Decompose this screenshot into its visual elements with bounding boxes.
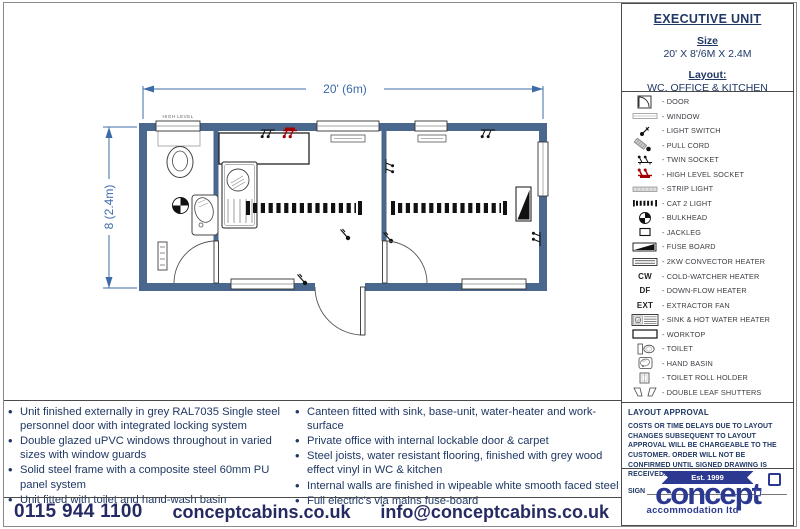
floor-plan: 20' (6m) 8 (2.4m) — [4, 3, 621, 400]
legend-item-label: - HAND BASIN — [662, 359, 713, 368]
entrance-opening — [315, 283, 365, 292]
legend-item: - WINDOW — [628, 110, 793, 123]
logo-est-ribbon: Est. 1999 — [662, 471, 754, 484]
datasheet-page: 20' (6m) 8 (2.4m) — [0, 0, 800, 529]
office-cat2-light — [391, 201, 507, 215]
ext-abbr: EXT — [628, 298, 662, 312]
legend-item-label: - CAT 2 LIGHT — [662, 199, 712, 208]
layout-approval-box: LAYOUT APPROVAL COSTS OR TIME DELAYS DUE… — [621, 402, 794, 526]
double-leaf-shutters-icon — [628, 385, 662, 399]
legend-item-label: - TWIN SOCKET — [662, 155, 719, 164]
legend-item: - STRIP LIGHT — [628, 182, 793, 195]
legend-item: CW- COLD-WATCHER HEATER — [628, 270, 793, 283]
legend-item-label: - FUSE BOARD — [662, 242, 716, 251]
legend-item-label: - EXTRACTOR FAN — [662, 301, 730, 310]
feature-item: Internal walls are finished in wipeable … — [291, 479, 621, 493]
entrance-door — [315, 287, 365, 335]
strip-light-icon — [628, 182, 662, 196]
legend-list: - DOOR- WINDOW- LIGHT SWITCH- PULL CORD-… — [621, 91, 794, 403]
floor-plan-area: 20' (6m) 8 (2.4m) — [4, 3, 621, 400]
features-list-left: Unit finished externally in grey RAL7035… — [4, 405, 291, 497]
legend-item: - CAT 2 LIGHT — [628, 197, 793, 210]
kitchen-cat2-light — [246, 201, 362, 215]
legend-item-label: - JACKLEG — [662, 228, 701, 237]
title-box: EXECUTIVE UNIT Size 20' X 8'/6M X 2.4M L… — [621, 3, 794, 92]
feature-item: Canteen fitted with sink, base-unit, wat… — [291, 405, 621, 433]
legend-item-label: - DOUBLE LEAF SHUTTERS — [662, 388, 761, 397]
legend-item-label: - COLD-WATCHER HEATER — [662, 272, 759, 281]
legend-item: - TWIN SOCKET — [628, 153, 793, 166]
light-switch-icon — [628, 124, 662, 138]
window-icon — [628, 109, 662, 123]
bulkhead-light — [173, 198, 189, 214]
legend-item-label: - HIGH LEVEL SOCKET — [662, 170, 744, 179]
df-abbr: DF — [628, 284, 662, 298]
pull-cord-icon — [628, 138, 662, 152]
legend-item-label: - DOWN-FLOW HEATER — [662, 286, 747, 295]
logo-square-big — [768, 473, 781, 486]
worktop — [219, 133, 309, 164]
legend-item: - SINK & HOT WATER HEATER — [628, 313, 793, 326]
layout-label: Layout: — [622, 69, 793, 81]
size-value: 20' X 8'/6M X 2.4M — [622, 48, 793, 60]
contact-bar: 0115 944 1100 conceptcabins.co.uk info@c… — [4, 497, 621, 526]
high-level-socket-icon — [628, 167, 662, 181]
legend-item: - DOOR — [628, 95, 793, 108]
sink-unit — [222, 162, 257, 228]
legend-item: EXT- EXTRACTOR FAN — [628, 299, 793, 312]
fuse-board — [516, 187, 531, 221]
legend-item-label: - PULL CORD — [662, 141, 710, 150]
legend-item: - HIGH LEVEL SOCKET — [628, 168, 793, 181]
twin-socket-icon — [628, 153, 662, 167]
legend-item-label: - 2KW CONVECTOR HEATER — [662, 257, 765, 266]
legend-item: - JACKLEG — [628, 226, 793, 239]
hand-basin — [192, 195, 218, 235]
legend-item: - PULL CORD — [628, 139, 793, 152]
logo-square-small — [754, 490, 761, 497]
twin-socket-partition — [386, 159, 394, 173]
legend-item: - LIGHT SWITCH — [628, 124, 793, 137]
toilet-icon — [628, 342, 662, 356]
office-partition-wall — [382, 127, 387, 241]
legend-item: - TOILET ROLL HOLDER — [628, 371, 793, 384]
toilet — [167, 147, 193, 178]
legend-item: DF- DOWN-FLOW HEATER — [628, 284, 793, 297]
jackleg-icon — [628, 225, 662, 239]
features-section: Unit finished externally in grey RAL7035… — [4, 400, 621, 497]
size-label: Size — [622, 35, 793, 47]
hand-basin-icon — [628, 356, 662, 370]
features-list-right: Canteen fitted with sink, base-unit, wat… — [291, 405, 621, 497]
logo-subtitle: accommodation ltd — [633, 505, 783, 516]
cat2-light-icon — [628, 196, 662, 210]
legend-item: - FUSE BOARD — [628, 240, 793, 253]
sink-heater-icon — [628, 313, 662, 327]
website-url: conceptcabins.co.uk — [172, 502, 350, 523]
legend-item-label: - SINK & HOT WATER HEATER — [662, 315, 770, 324]
phone-number: 0115 944 1100 — [14, 501, 143, 523]
light-switch-kitchen-partition — [341, 229, 351, 240]
legend-item-label: - LIGHT SWITCH — [662, 126, 721, 135]
legend-item: - TOILET — [628, 342, 793, 355]
twin-socket-office-top — [481, 130, 495, 138]
toilet-roll-holder — [158, 242, 167, 270]
feature-item: Unit finished externally in grey RAL7035… — [4, 405, 291, 433]
left-dimension: 8 (2.4m) — [102, 127, 137, 288]
legend-item-label: - WINDOW — [662, 112, 700, 121]
svg-text:20' (6m): 20' (6m) — [323, 82, 367, 96]
main-area: 20' (6m) 8 (2.4m) — [4, 3, 621, 526]
wc-door — [174, 241, 219, 283]
convector-heater-icon — [628, 255, 662, 269]
email-address: info@conceptcabins.co.uk — [380, 502, 609, 523]
cw-abbr: CW — [628, 269, 662, 283]
office-door — [383, 241, 428, 283]
bulkhead-icon — [628, 211, 662, 225]
feature-item: Steel joists, water resistant flooring, … — [291, 449, 621, 477]
twin-socket-office-right — [532, 232, 540, 246]
feature-item: Double glazed uPVC windows throughout in… — [4, 434, 291, 462]
fuse-board-icon — [628, 240, 662, 254]
legend-item-label: - TOILET — [662, 344, 693, 353]
company-logo: Est. 1999 concept accommodation ltd — [622, 468, 793, 525]
legend-item: - 2KW CONVECTOR HEATER — [628, 255, 793, 268]
worktop-icon — [628, 327, 662, 341]
feature-item: Solid steel frame with a composite steel… — [4, 463, 291, 491]
legend-item-label: - STRIP LIGHT — [662, 184, 713, 193]
legend-item-label: - TOILET ROLL HOLDER — [662, 373, 748, 382]
feature-item: Private office with internal lockable do… — [291, 434, 621, 448]
legend-item: - DOUBLE LEAF SHUTTERS — [628, 386, 793, 399]
toilet-roll-holder-icon — [628, 371, 662, 385]
svg-text:8 (2.4m): 8 (2.4m) — [102, 185, 116, 230]
legend-item-label: - BULKHEAD — [662, 213, 707, 222]
legend-item: - WORKTOP — [628, 328, 793, 341]
unit-title: EXECUTIVE UNIT — [622, 12, 793, 26]
legend-item-label: - WORKTOP — [662, 330, 705, 339]
door-icon — [628, 95, 662, 109]
wc-shelf — [158, 131, 200, 146]
legend-item: - HAND BASIN — [628, 357, 793, 370]
approval-heading: LAYOUT APPROVAL — [628, 408, 787, 417]
legend-item: - BULKHEAD — [628, 211, 793, 224]
legend-item-label: - DOOR — [662, 97, 689, 106]
high-level-label: HIGH LEVEL — [162, 114, 193, 119]
strip-lights — [331, 135, 446, 142]
top-dimension: 20' (6m) — [143, 82, 543, 119]
